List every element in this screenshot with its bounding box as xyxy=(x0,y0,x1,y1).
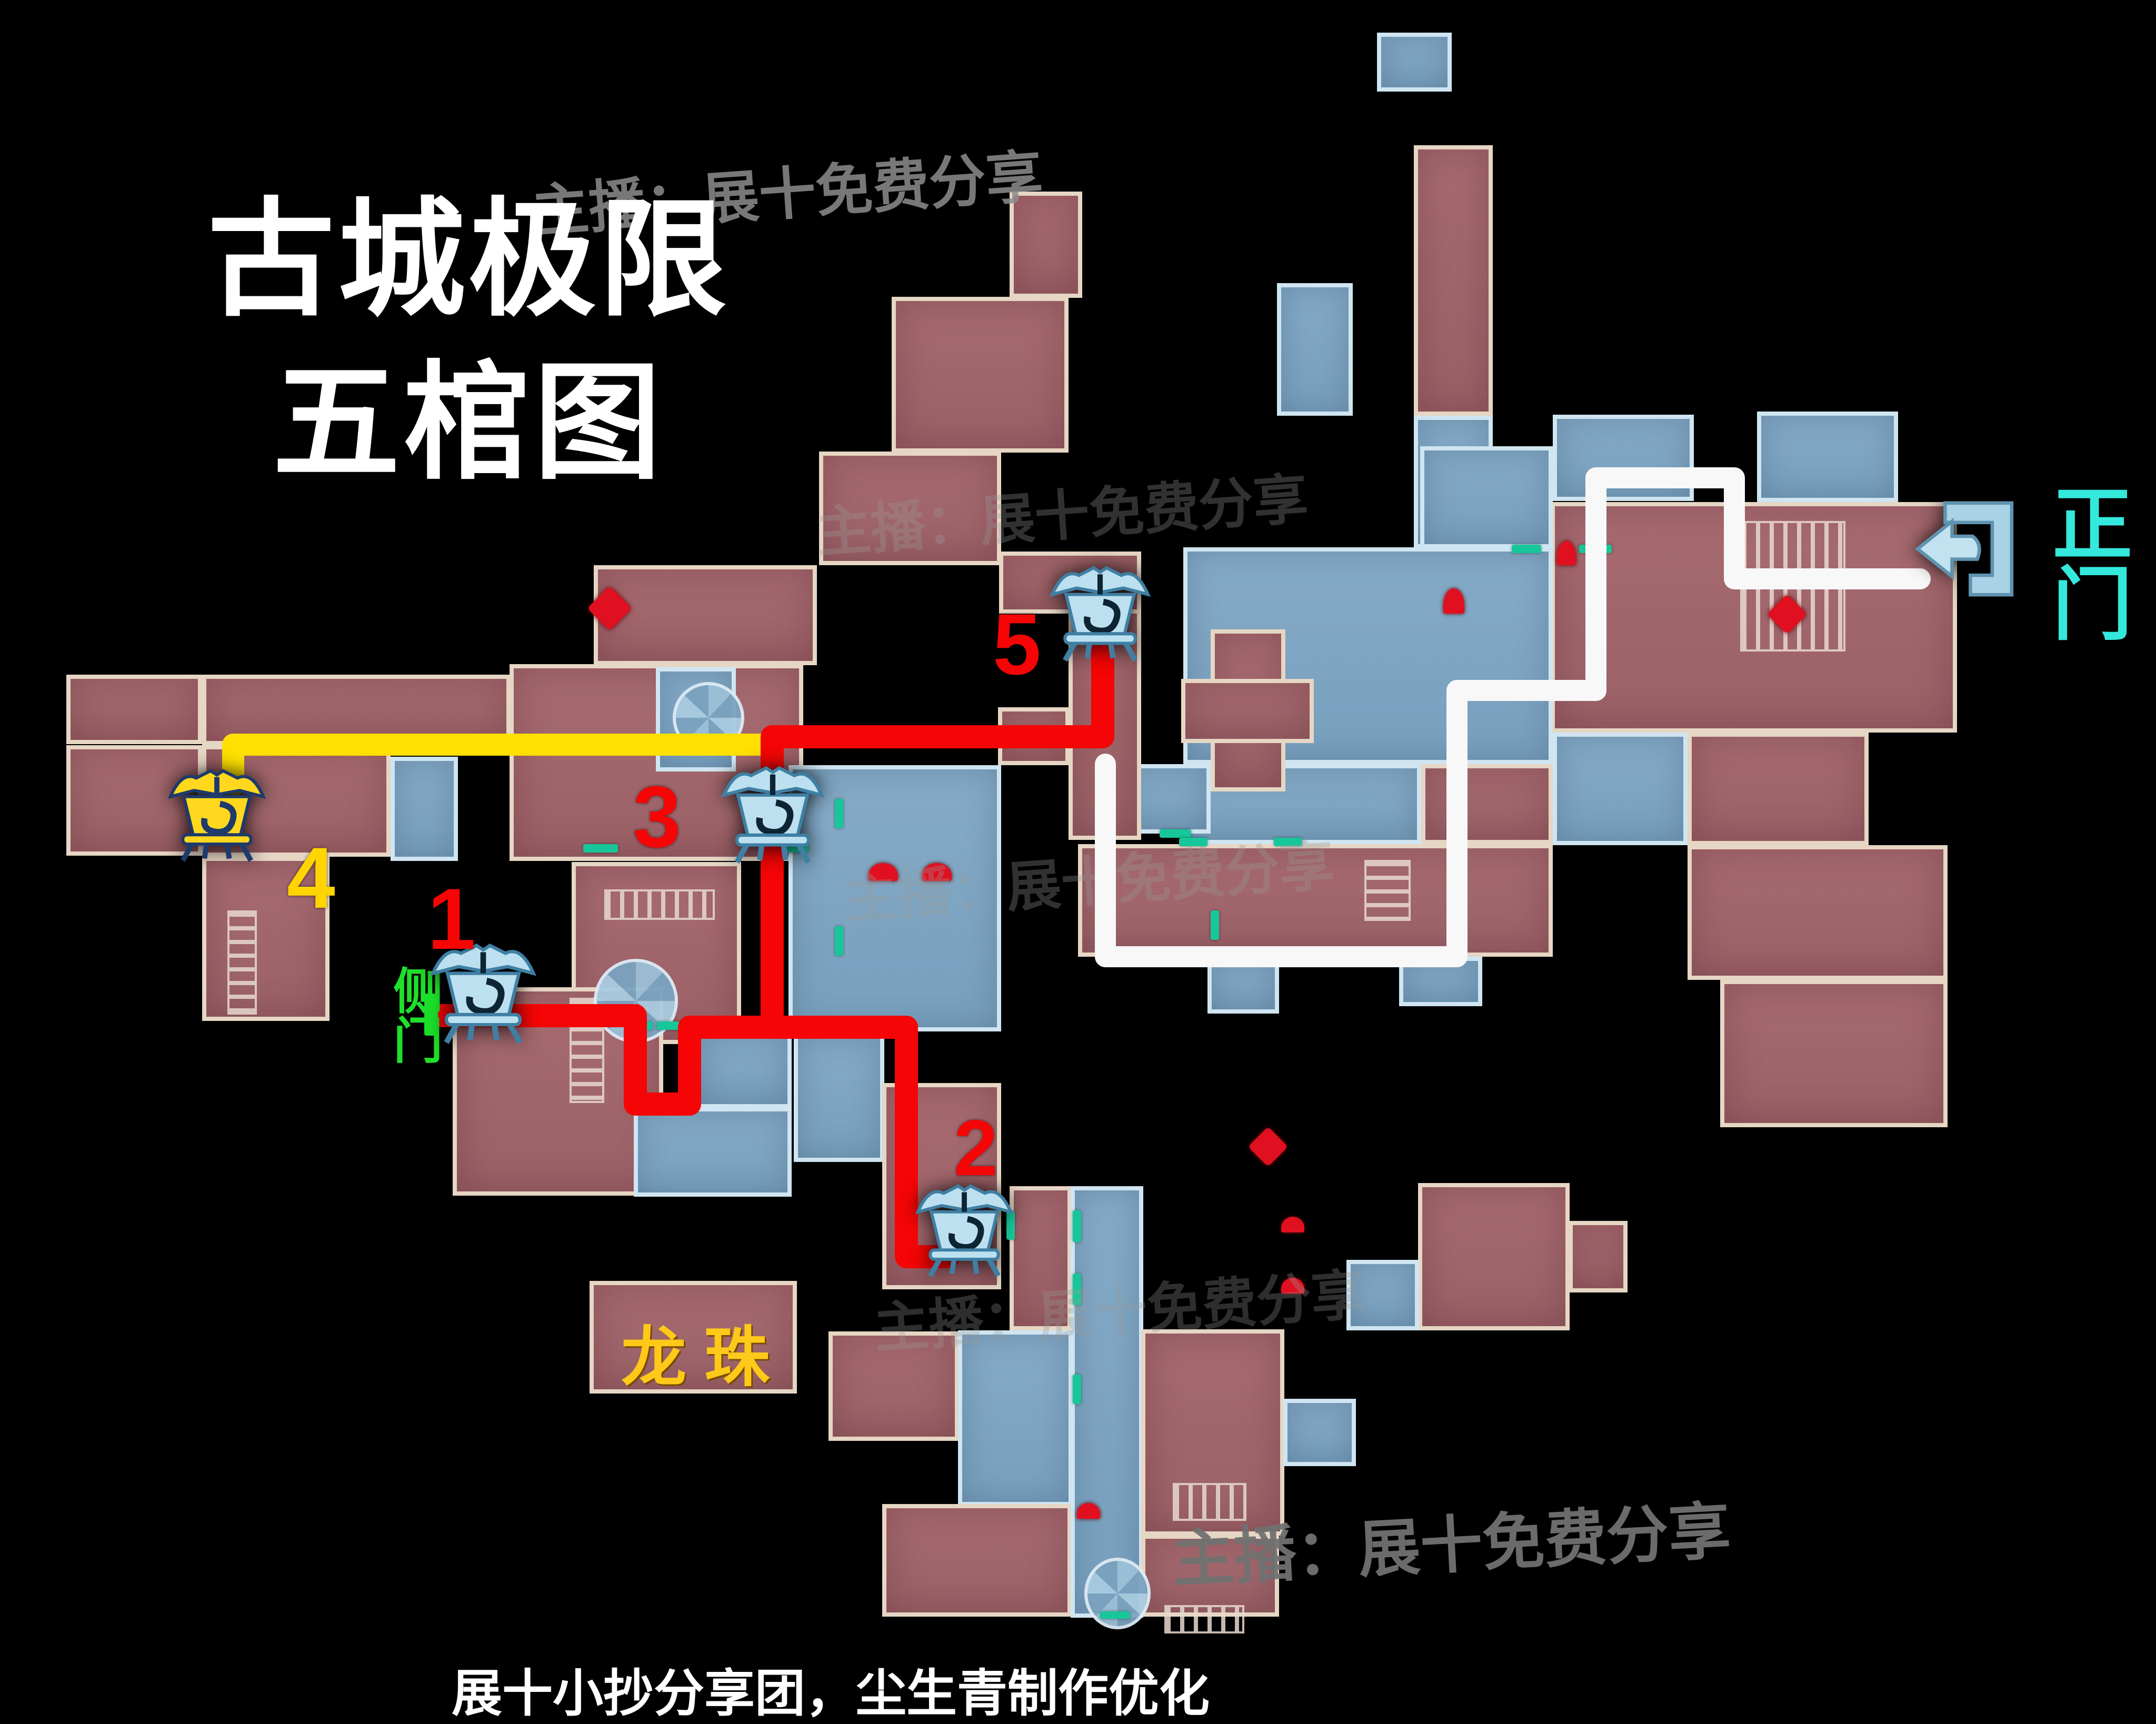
coffin-icon-2 xyxy=(913,1181,1016,1284)
coffin-icon-4 xyxy=(165,766,268,869)
coffin-icon-3 xyxy=(718,763,827,871)
map-title-line1: 古城极限 xyxy=(163,179,774,342)
coffin-number-2: 2 xyxy=(954,1108,997,1187)
map-stage: 主播：展十免费分享主播：展十免费分享主播：展十免费分享主播：展十免费分享主播：展… xyxy=(0,0,2156,1724)
coffin-number-3: 3 xyxy=(633,774,681,860)
coffin-number-1: 1 xyxy=(427,876,476,963)
credit-caption: 展十小抄分享团，尘生青制作优化 xyxy=(452,1652,1210,1724)
coffin-number-5: 5 xyxy=(993,601,1041,688)
main-gate-label: 正门 xyxy=(2040,482,2130,642)
main-gate-icon xyxy=(1911,492,2025,606)
dragon-pearl-label: 龙珠 xyxy=(621,1304,787,1399)
coffin-number-4: 4 xyxy=(287,835,335,921)
map-title-line2: 五棺图 xyxy=(163,342,774,505)
map-title: 古城极限 五棺图 xyxy=(163,179,774,505)
coffin-icon-5 xyxy=(1047,563,1153,669)
